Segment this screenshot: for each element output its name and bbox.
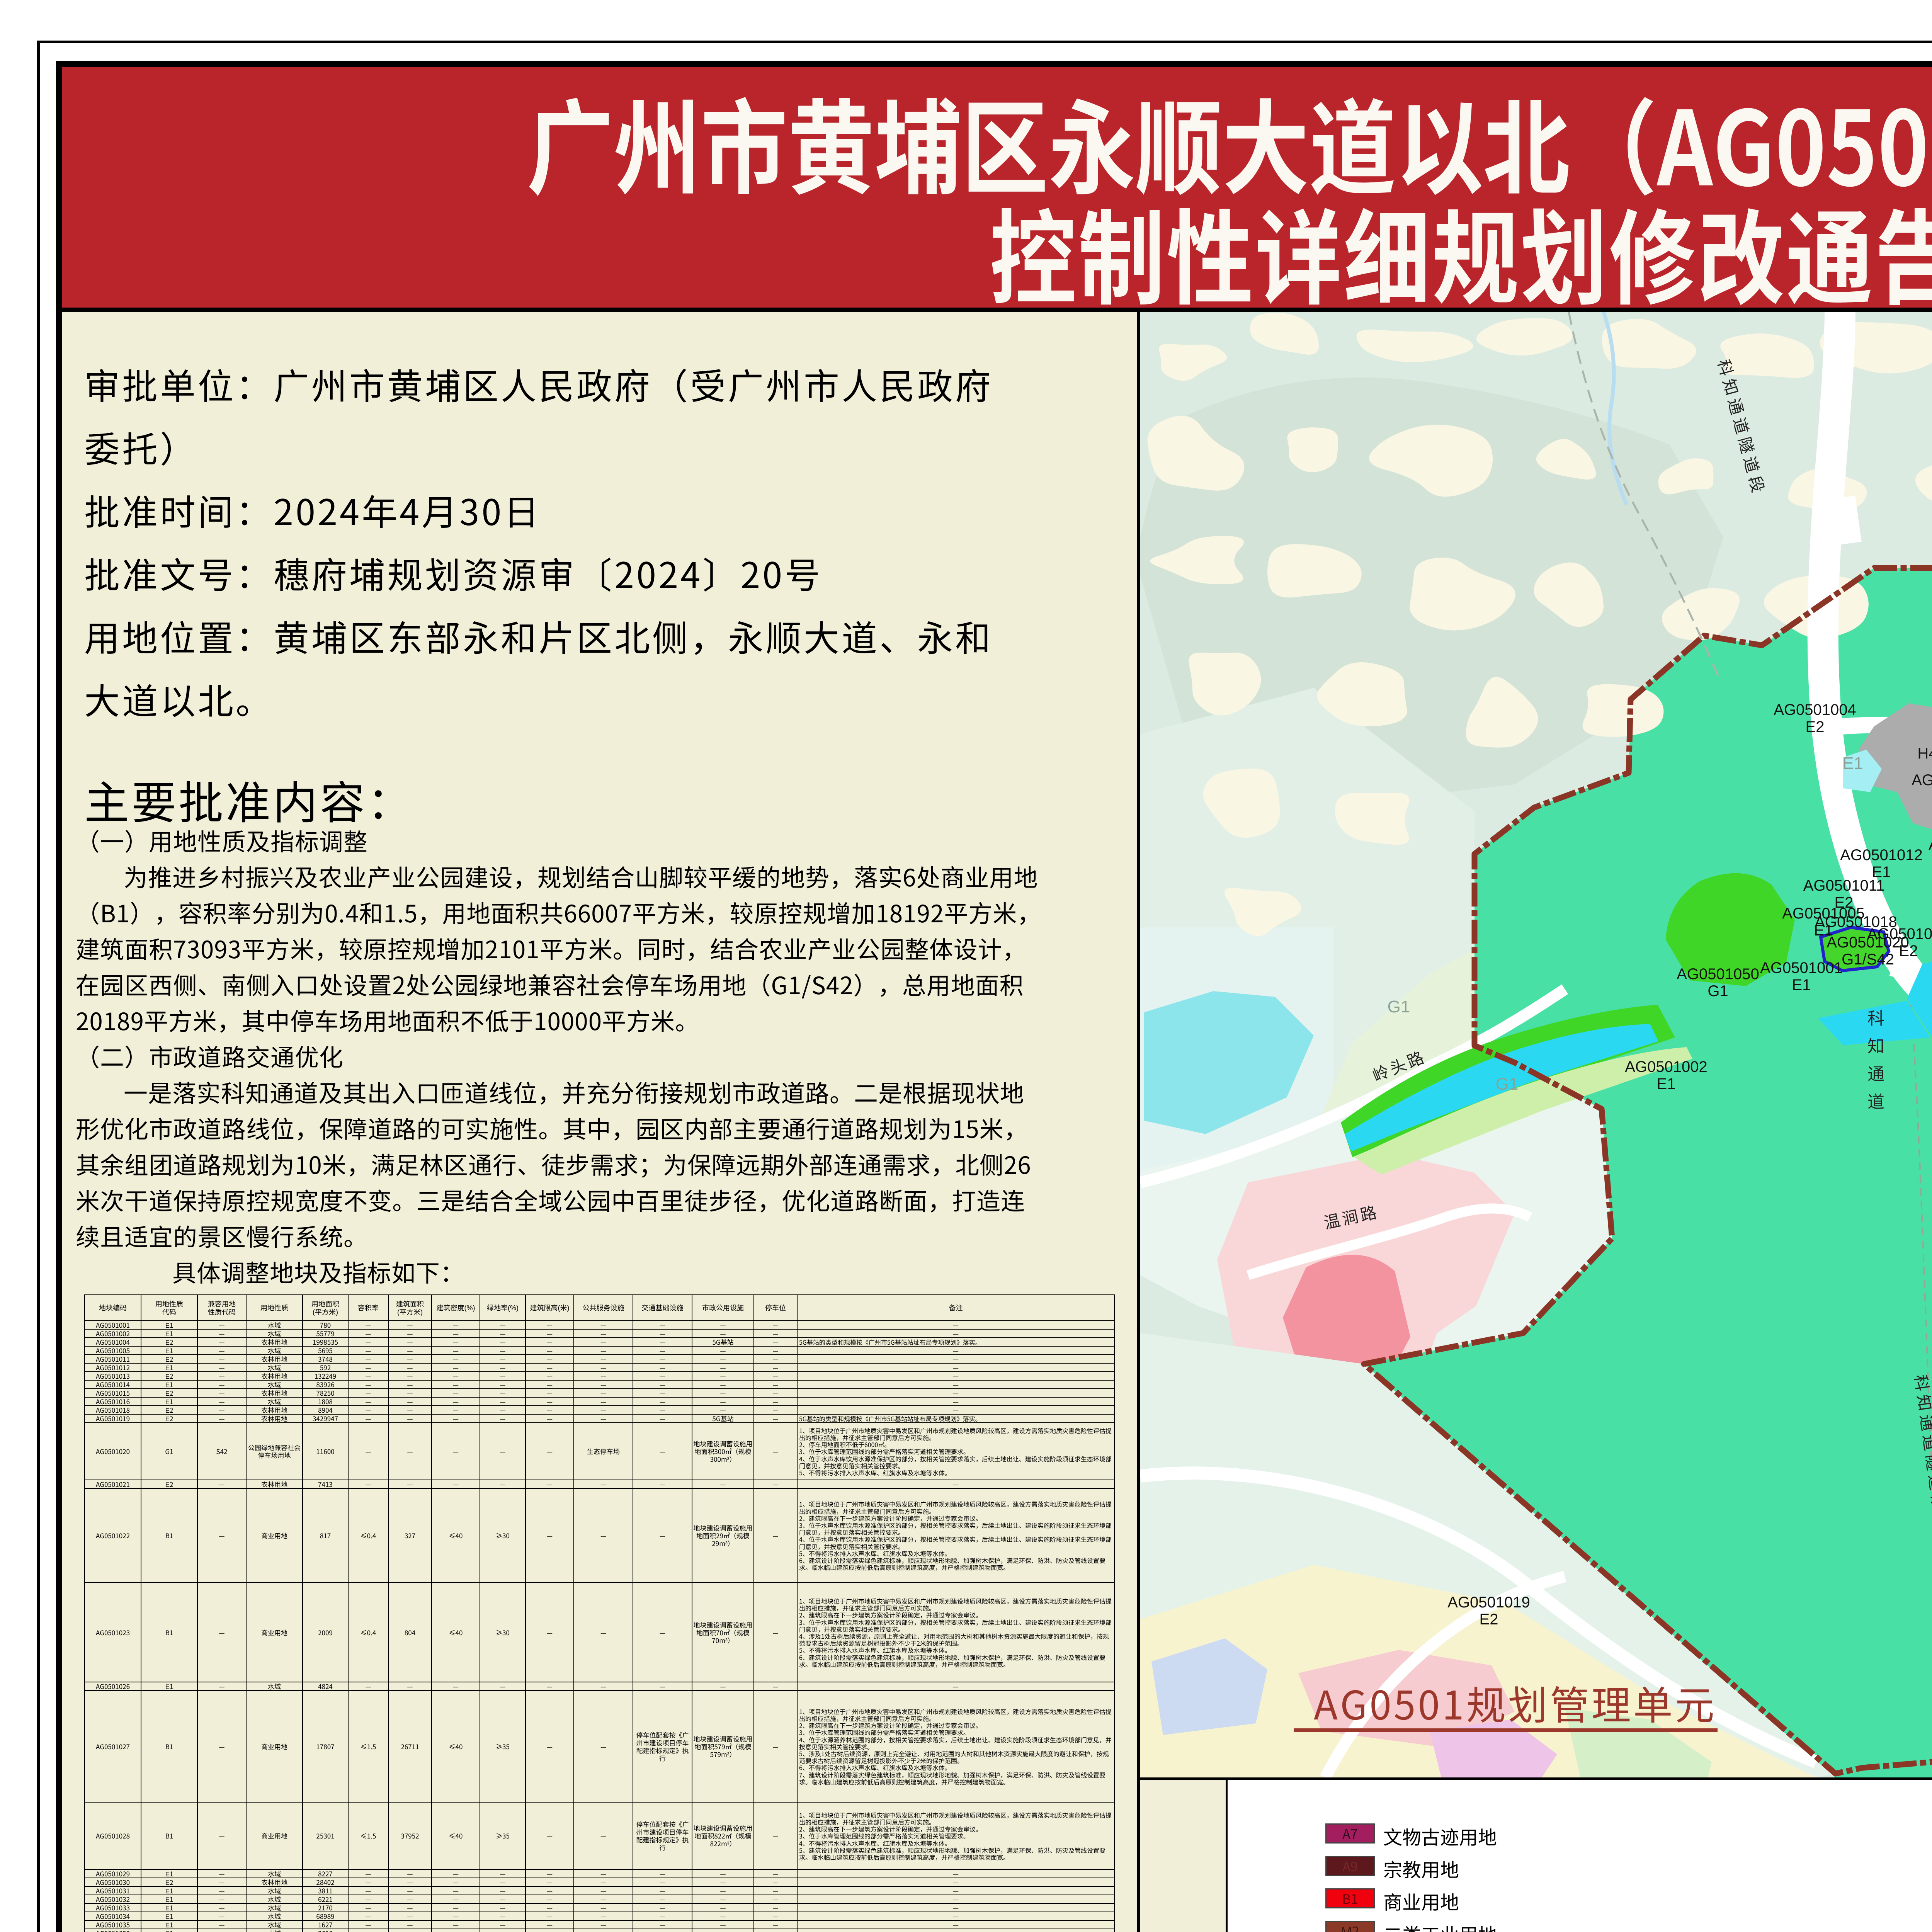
svg-text:AG0501002: AG0501002 bbox=[1625, 1058, 1708, 1075]
svg-text:G1: G1 bbox=[1708, 983, 1728, 1000]
svg-text:AG0501020: AG0501020 bbox=[1827, 934, 1909, 951]
svg-text:E2: E2 bbox=[1806, 718, 1825, 735]
svg-text:G1: G1 bbox=[1496, 1075, 1519, 1094]
svg-text:E2: E2 bbox=[1480, 1611, 1498, 1628]
svg-text:AG0501016: AG0501016 bbox=[1912, 772, 1932, 789]
svg-text:AG0501050: AG0501050 bbox=[1677, 966, 1759, 983]
svg-text:E1: E1 bbox=[1792, 976, 1811, 993]
svg-text:AG0501规划管理单元: AG0501规划管理单元 bbox=[1314, 1674, 1717, 1731]
svg-text:E1: E1 bbox=[1657, 1075, 1676, 1092]
svg-text:AG0501004: AG0501004 bbox=[1774, 701, 1856, 718]
svg-text:科知通道: 科知通道 bbox=[1864, 1005, 1888, 1116]
svg-text:AG0501001: AG0501001 bbox=[1760, 959, 1843, 976]
svg-text:H4: H4 bbox=[1917, 745, 1932, 762]
svg-text:AG0501013: AG0501013 bbox=[1929, 836, 1932, 853]
svg-text:G1: G1 bbox=[1388, 997, 1410, 1016]
svg-text:AG0501019: AG0501019 bbox=[1447, 1594, 1530, 1611]
svg-text:E1: E1 bbox=[1842, 754, 1863, 773]
svg-text:G1/S42: G1/S42 bbox=[1842, 951, 1894, 968]
svg-text:AG0501011: AG0501011 bbox=[1803, 877, 1885, 894]
svg-text:AG0501012: AG0501012 bbox=[1840, 847, 1923, 864]
